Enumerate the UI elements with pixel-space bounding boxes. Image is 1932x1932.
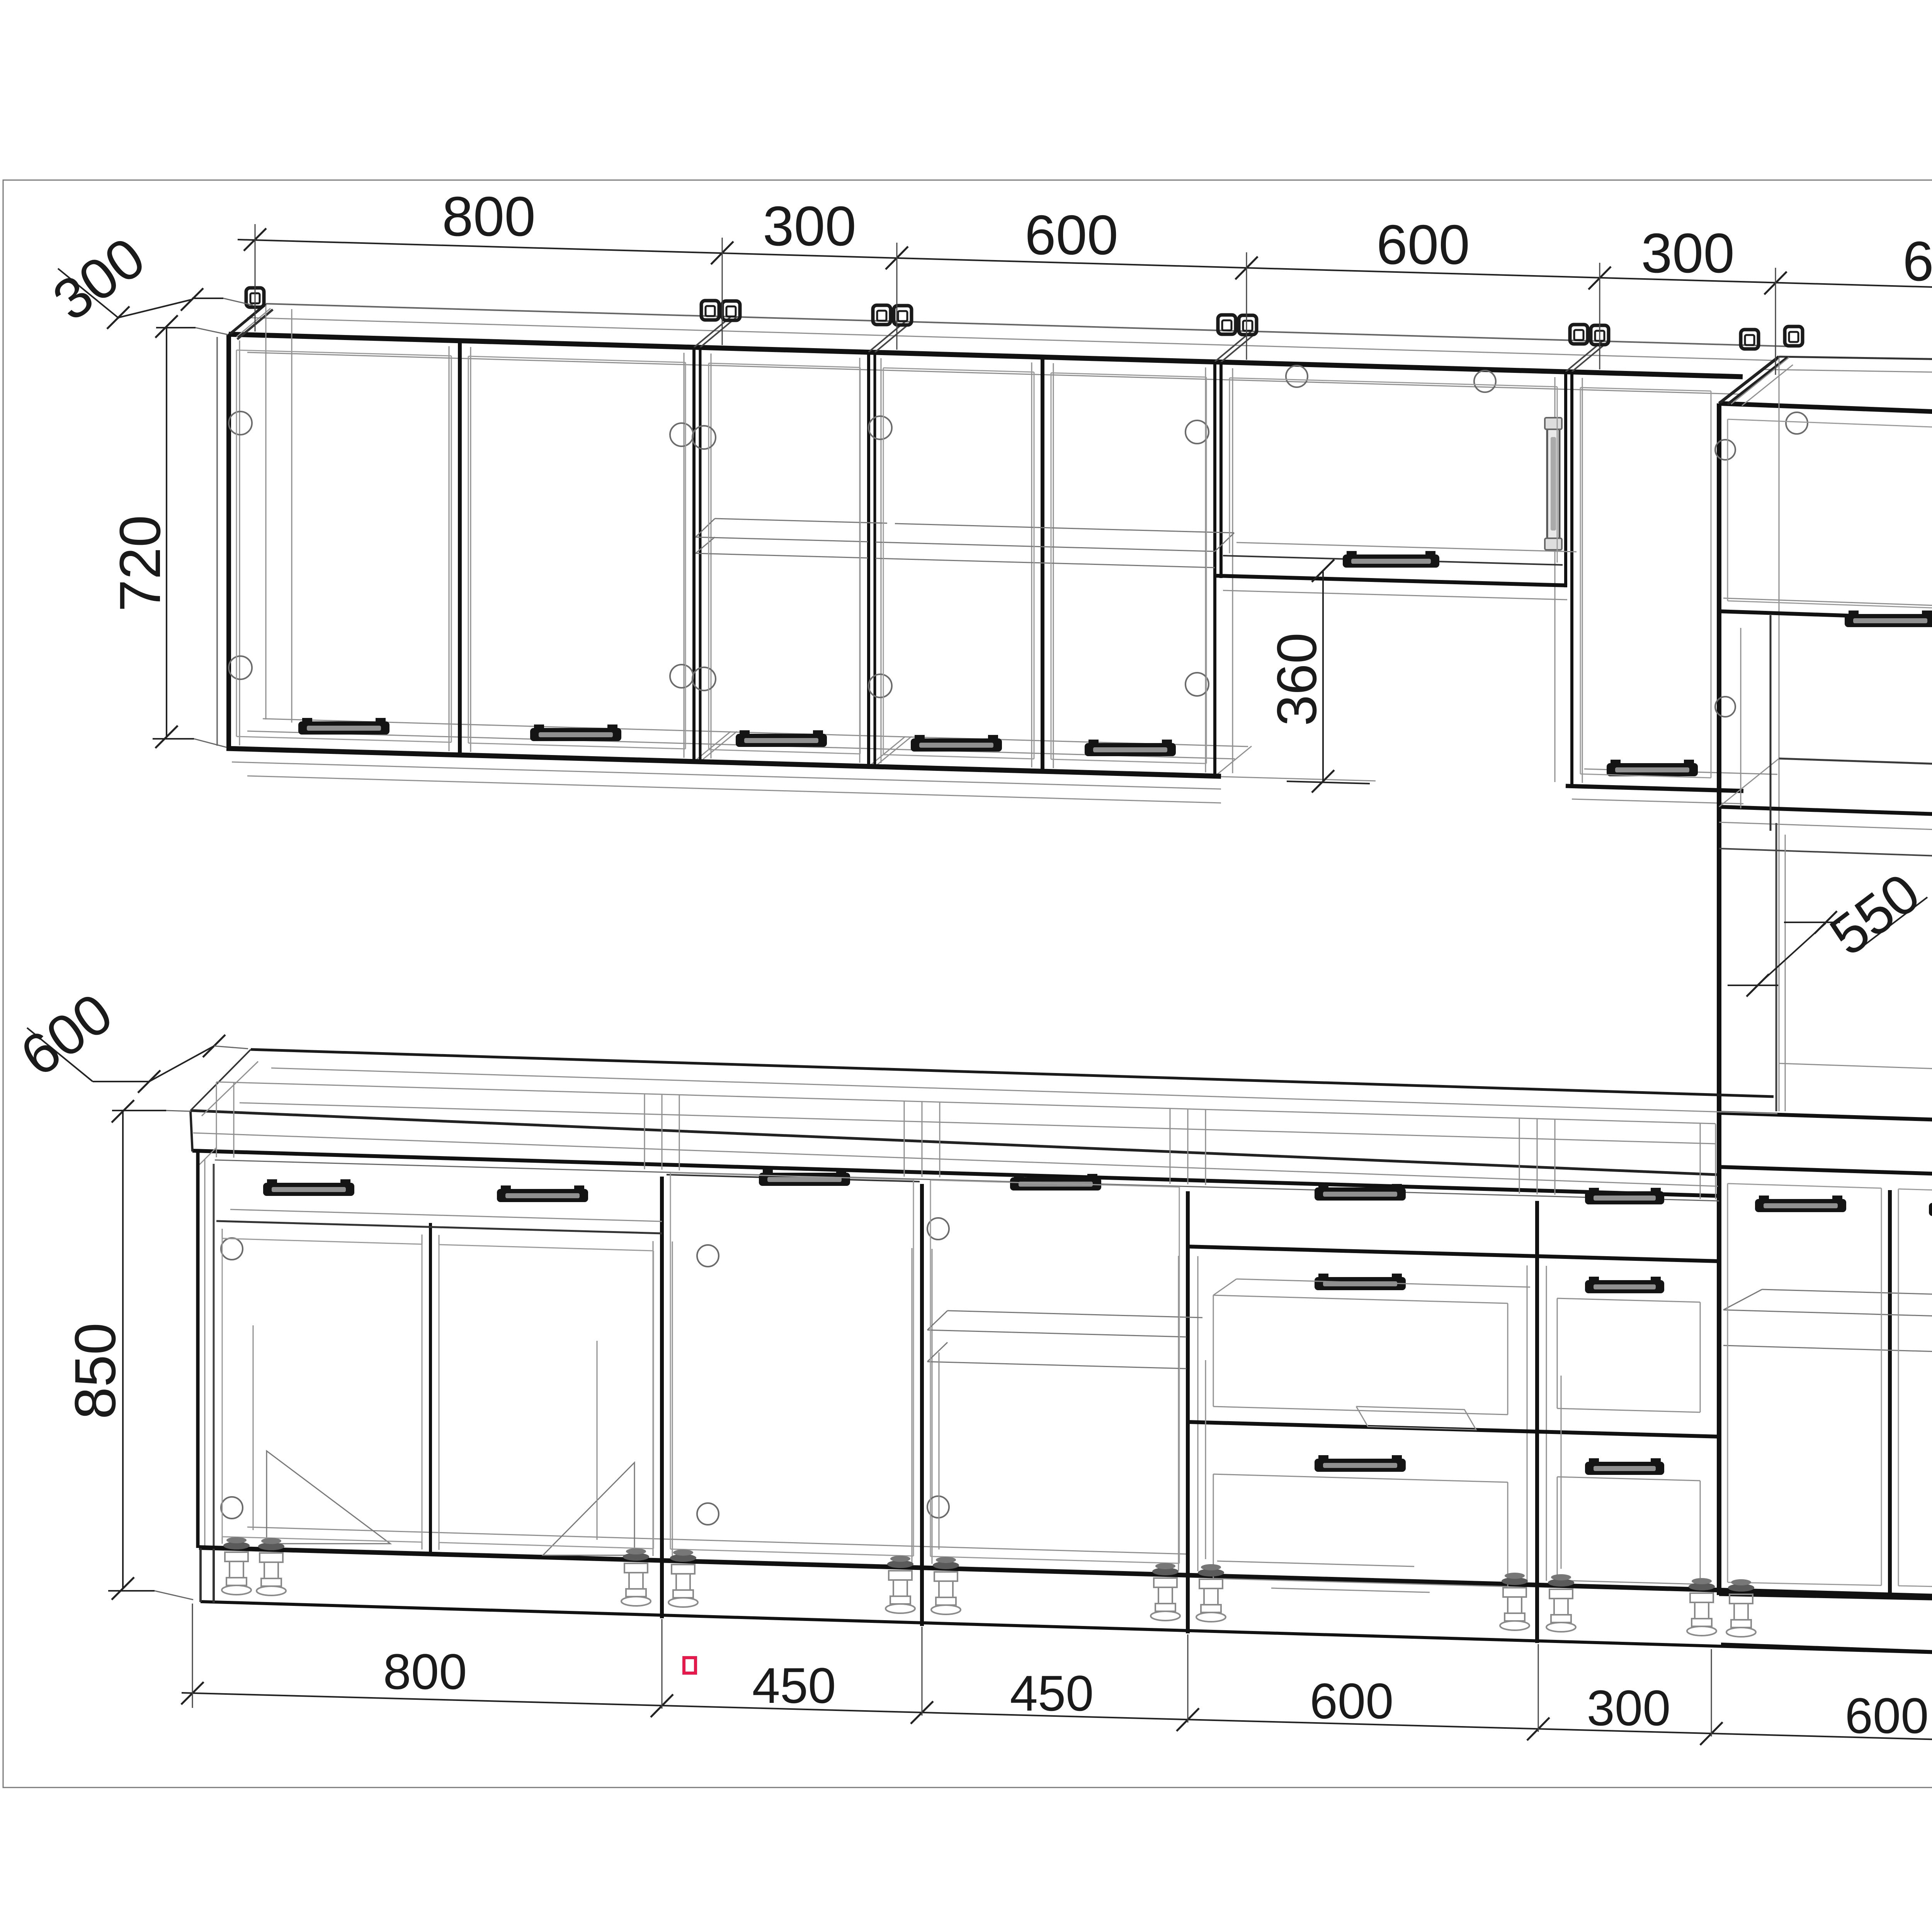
- svg-text:600: 600: [1845, 1687, 1929, 1744]
- svg-text:450: 450: [1010, 1665, 1094, 1721]
- svg-text:300: 300: [763, 195, 856, 257]
- svg-text:850: 850: [63, 1323, 128, 1419]
- svg-text:800: 800: [383, 1643, 467, 1700]
- svg-text:720: 720: [107, 515, 172, 612]
- svg-text:600: 600: [1903, 230, 1932, 293]
- svg-text:300: 300: [1587, 1680, 1671, 1736]
- svg-text:600: 600: [1025, 204, 1118, 266]
- svg-text:360: 360: [1265, 633, 1328, 726]
- svg-text:800: 800: [442, 185, 536, 248]
- svg-text:600: 600: [1376, 213, 1470, 276]
- svg-text:300: 300: [1641, 222, 1735, 284]
- svg-text:450: 450: [752, 1657, 836, 1714]
- svg-text:600: 600: [1310, 1673, 1394, 1729]
